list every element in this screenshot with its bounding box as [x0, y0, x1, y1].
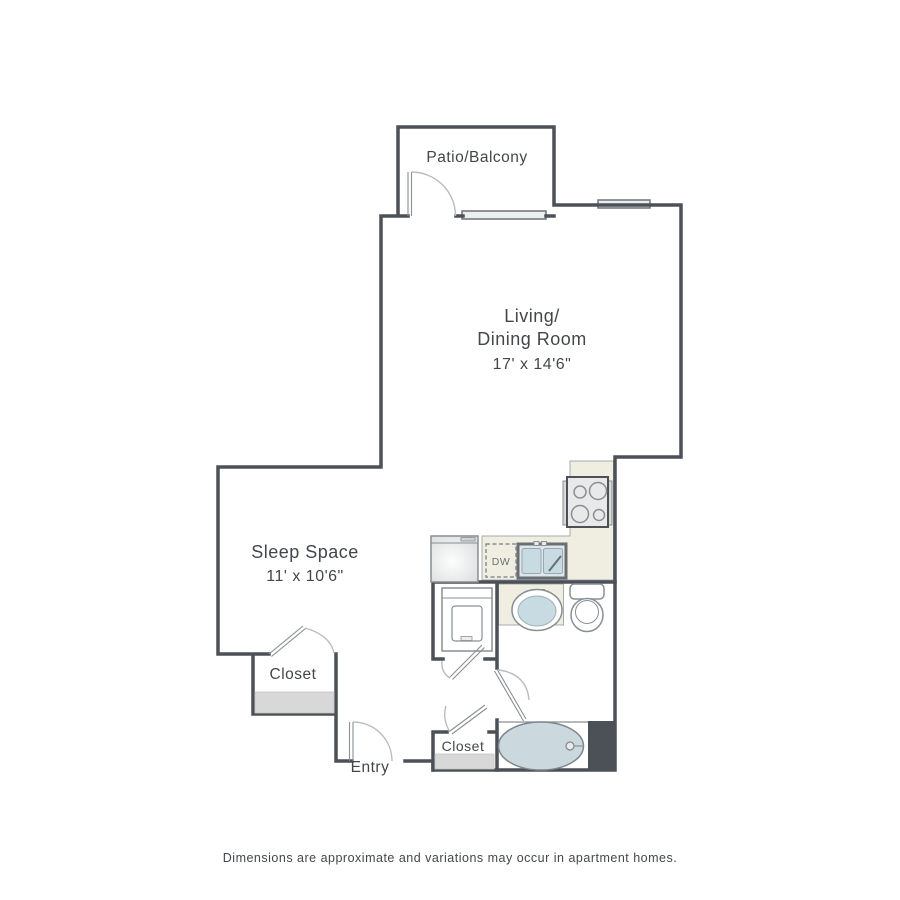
washer-dryer-icon [442, 588, 492, 651]
sleep-space-dimensions: 11' x 10'6" [266, 568, 343, 585]
patio-balcony-label: Patio/Balcony [426, 149, 527, 166]
hall-closet-label: Closet [442, 738, 485, 754]
living-dining-dimensions: 17' x 14'6" [493, 356, 572, 373]
living-dining-label-line2: Dining Room [477, 329, 587, 349]
living-dining-label-line1: Living/ [504, 306, 560, 326]
tub-wall-block [588, 721, 615, 770]
sleep-space-label: Sleep Space [251, 542, 359, 562]
kitchen-sink-icon [518, 542, 566, 579]
dishwasher-label: DW [492, 556, 511, 568]
bathroom-door [495, 669, 530, 721]
bedroom-closet-shelf [255, 692, 334, 713]
patio-door [408, 172, 456, 216]
patio-window [462, 211, 546, 219]
toilet-icon [570, 584, 604, 632]
disclaimer-text: Dimensions are approximate and variation… [223, 851, 677, 865]
entry-door [350, 722, 393, 761]
floor-plan-drawing: DW [0, 0, 900, 900]
bathroom-sink-icon [512, 590, 562, 631]
stove-icon [563, 477, 612, 527]
bathtub-icon [499, 721, 616, 770]
refrigerator-icon [431, 536, 478, 582]
entry-label: Entry [351, 759, 390, 776]
hall-closet-shelf [435, 754, 494, 769]
bedroom-closet-door [269, 626, 334, 657]
floor-plan-page: DW [0, 0, 900, 900]
hall-closet-door [445, 705, 487, 734]
bedroom-closet-label: Closet [270, 666, 317, 683]
